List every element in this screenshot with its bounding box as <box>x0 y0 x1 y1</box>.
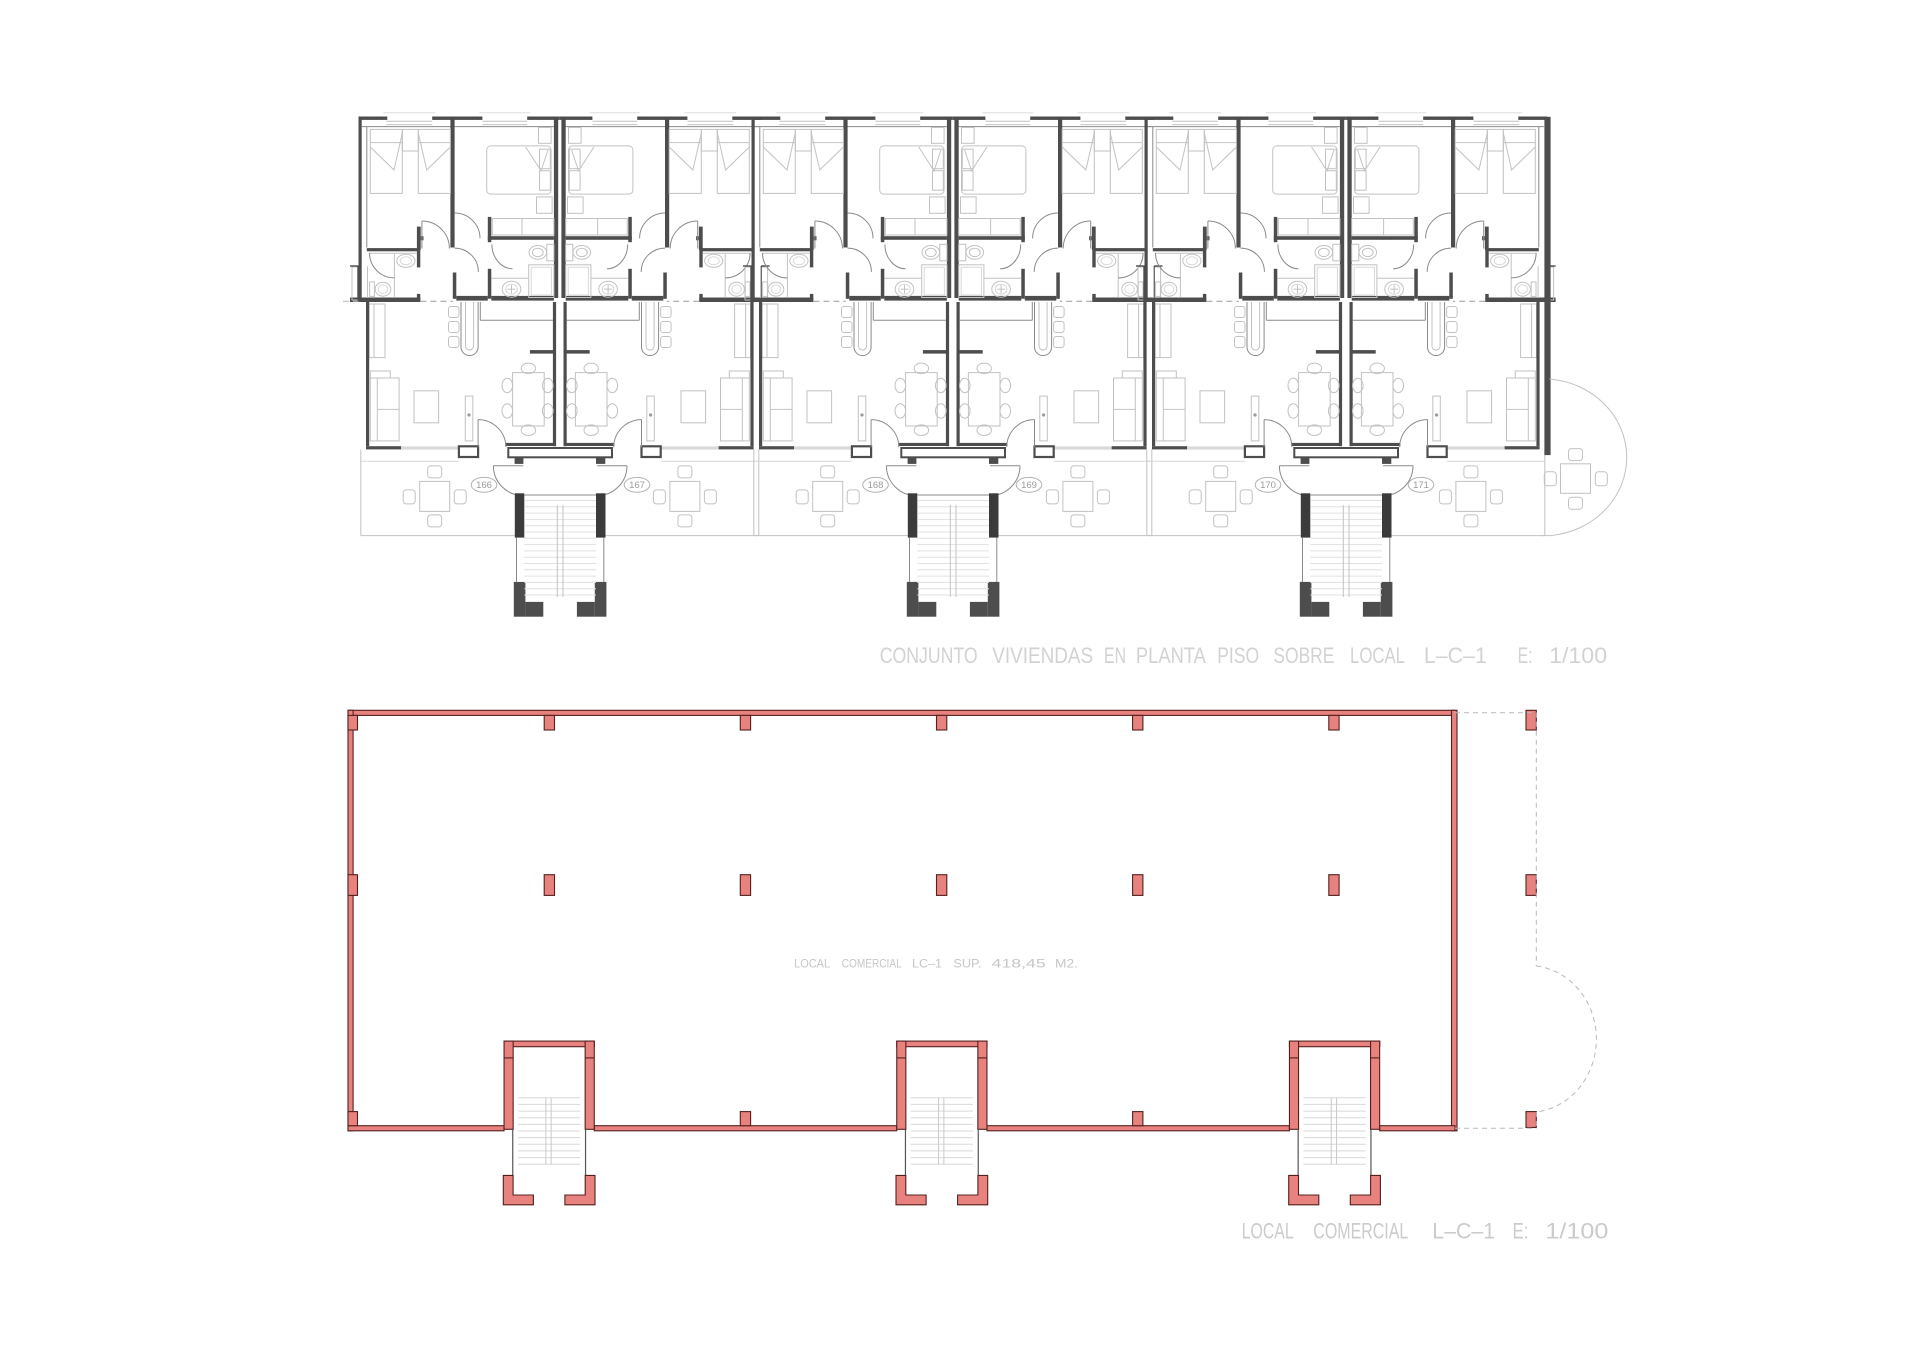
svg-text:L–C–1: L–C–1 <box>1424 643 1487 668</box>
svg-text:418,45: 418,45 <box>992 959 1046 971</box>
svg-text:E:: E: <box>1513 1219 1529 1244</box>
svg-text:EN: EN <box>1104 643 1126 668</box>
svg-text:LOCAL: LOCAL <box>1350 643 1405 668</box>
svg-text:170: 170 <box>1260 480 1276 491</box>
svg-text:PISO: PISO <box>1217 643 1259 668</box>
svg-text:LOCAL: LOCAL <box>794 959 831 971</box>
svg-text:M2.: M2. <box>1055 959 1078 971</box>
svg-text:PLANTA: PLANTA <box>1136 643 1206 668</box>
svg-text:LC–1: LC–1 <box>912 959 942 971</box>
svg-text:L–C–1: L–C–1 <box>1432 1219 1495 1244</box>
svg-text:166: 166 <box>476 480 492 491</box>
svg-text:CONJUNTO: CONJUNTO <box>880 643 978 668</box>
svg-text:LOCAL: LOCAL <box>1242 1219 1294 1244</box>
svg-text:E:: E: <box>1518 643 1533 668</box>
svg-text:SOBRE: SOBRE <box>1273 643 1334 668</box>
svg-text:1/100: 1/100 <box>1545 1219 1608 1244</box>
svg-text:167: 167 <box>629 480 645 491</box>
svg-text:169: 169 <box>1021 480 1037 491</box>
svg-text:168: 168 <box>868 480 884 491</box>
svg-text:VIVIENDAS: VIVIENDAS <box>992 643 1093 668</box>
svg-text:COMERCIAL: COMERCIAL <box>1313 1219 1408 1244</box>
svg-text:SUP.: SUP. <box>953 959 981 971</box>
svg-text:COMERCIAL: COMERCIAL <box>842 959 903 971</box>
svg-text:171: 171 <box>1413 480 1429 491</box>
svg-text:1/100: 1/100 <box>1549 643 1607 668</box>
